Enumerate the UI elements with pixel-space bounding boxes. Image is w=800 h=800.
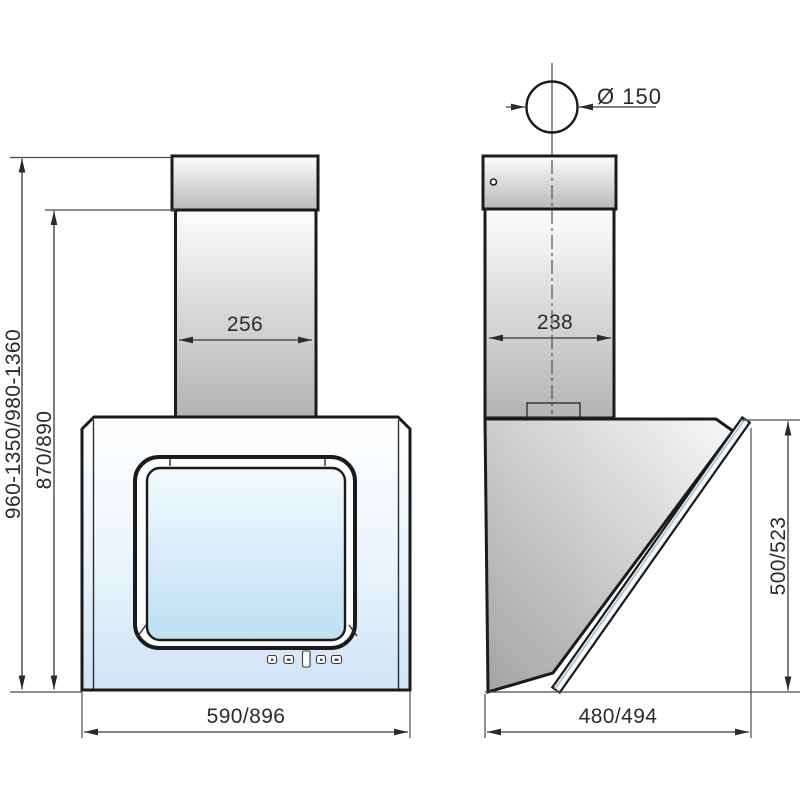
cooker-hood-dimension-drawing: Ø 150 960-1350/980-1360 870/890 256 590/…	[0, 0, 800, 800]
control-key-glyph	[271, 659, 274, 662]
side-hood-body-wedge	[485, 419, 733, 692]
drawing-canvas: Ø 150 960-1350/980-1360 870/890 256 590/…	[0, 0, 800, 800]
body-width-label: 590/896	[207, 705, 286, 728]
chimney-width-label: 256	[227, 313, 263, 336]
side-view	[483, 63, 750, 693]
duct-diameter-label: Ø 150	[597, 84, 662, 109]
total-height-label: 960-1350/980-1360	[2, 329, 25, 519]
control-key-glyph	[320, 659, 323, 662]
side-chimney-cap	[483, 156, 616, 209]
body-depth-label: 480/494	[579, 705, 658, 728]
dim-body-width: 590/896	[82, 692, 410, 738]
display-icon	[303, 651, 311, 667]
cap-screw-hole	[491, 179, 497, 185]
front-view	[82, 156, 410, 690]
body-height-label: 870/890	[33, 411, 56, 490]
glass-panel	[147, 468, 345, 640]
front-chimney-cap	[172, 156, 318, 210]
control-key-glyph	[335, 659, 339, 662]
glass-length-label: 500/523	[767, 517, 790, 596]
control-key-glyph	[287, 659, 291, 662]
chimney-depth-label: 238	[537, 311, 573, 334]
